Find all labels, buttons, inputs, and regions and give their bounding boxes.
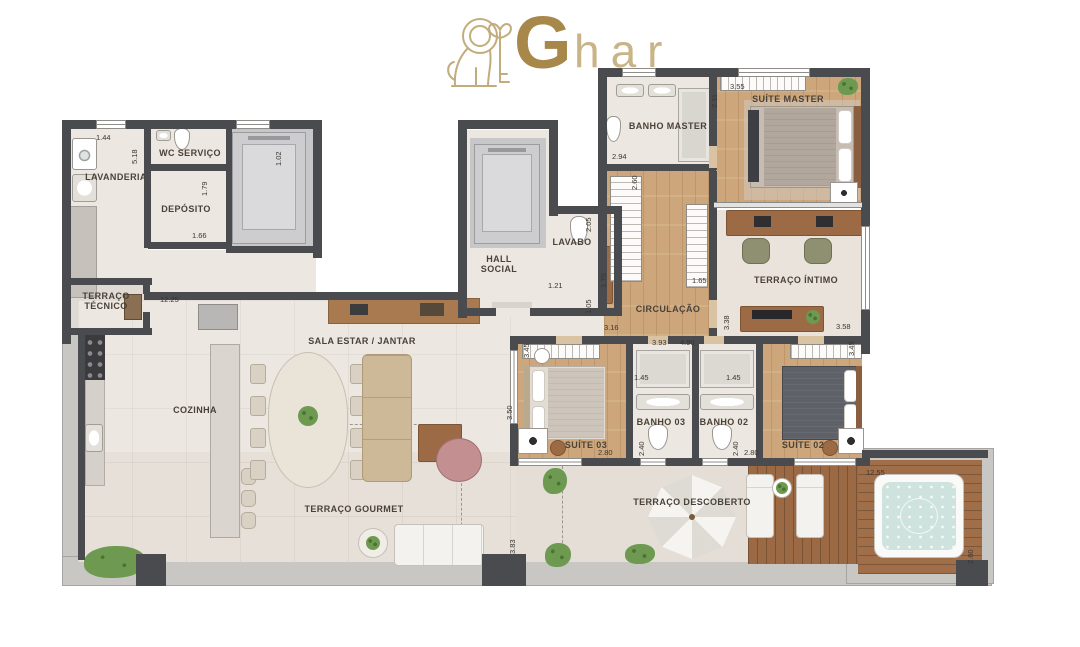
- floor-entry: [148, 250, 316, 296]
- home-office-desk: [726, 210, 864, 236]
- room-label-banho-03: BANHO 03: [637, 417, 686, 427]
- brand-letter-g: G: [514, 6, 572, 80]
- table-plant: [298, 406, 318, 426]
- wall: [226, 246, 322, 253]
- wall: [549, 120, 558, 216]
- wall-mirror: [534, 348, 550, 364]
- room-label-suite-02: SUÍTE 02: [782, 440, 824, 450]
- dim-label: 1.65: [692, 276, 707, 285]
- desk: [838, 428, 864, 454]
- sideboard-appliance: [420, 303, 444, 316]
- laptop: [816, 216, 833, 227]
- wall: [313, 120, 322, 258]
- dim-label: 1.45: [634, 373, 649, 382]
- wall: [692, 344, 699, 460]
- outdoor-sofa: [394, 524, 484, 566]
- wall: [458, 120, 558, 129]
- kitchen-sink: [85, 424, 103, 452]
- wall-pillar: [136, 554, 166, 586]
- dim-label: 3.50: [505, 405, 514, 420]
- brand-logo: G har: [438, 6, 678, 94]
- dim-label: 3.45: [847, 341, 856, 356]
- dim-label: 12.25: [160, 295, 179, 304]
- dim-label: 3.16: [604, 323, 619, 332]
- room-label-suite-master: SUÍTE MASTER: [752, 94, 824, 104]
- dining-chair: [250, 364, 266, 384]
- laptop: [754, 216, 771, 227]
- dim-label: 1.45: [726, 373, 741, 382]
- umbrella-pole: [689, 514, 695, 520]
- wall: [144, 292, 464, 300]
- dim-label: 2.80: [598, 448, 613, 457]
- elevator-car-inner: [482, 154, 532, 232]
- room-label-sala-estar-jantar: SALA ESTAR / JANTAR: [308, 336, 415, 346]
- door-opening: [798, 336, 824, 344]
- bed-bench: [748, 110, 759, 182]
- dining-chair: [250, 396, 266, 416]
- dim-label: 2.40: [637, 441, 646, 456]
- pillow: [532, 370, 545, 402]
- pillow: [838, 110, 852, 144]
- door-opening: [704, 336, 724, 344]
- dim-label: 2.60: [630, 175, 639, 190]
- dim-label: 3.83: [508, 539, 517, 554]
- window: [96, 120, 126, 129]
- desk-chair: [822, 440, 838, 456]
- pillow: [838, 148, 852, 182]
- dining-chair: [250, 460, 266, 480]
- plant: [838, 78, 858, 95]
- bed-blanket: [548, 368, 604, 438]
- wall: [78, 330, 85, 560]
- room-label-deposito: DEPÓSITO: [161, 204, 211, 214]
- wall: [614, 206, 622, 314]
- floorplan-canvas: LAVANDERIA WC SERVIÇO DEPÓSITO TERRAÇO T…: [0, 0, 1080, 647]
- room-label-terraco-descoberto: TERRAÇO DESCOBERTO: [633, 497, 751, 507]
- window: [702, 458, 728, 466]
- bathroom-sink: [636, 394, 690, 410]
- sideboard-appliance: [350, 304, 368, 315]
- tv: [752, 310, 792, 319]
- headboard: [854, 106, 861, 188]
- window: [861, 226, 870, 310]
- wall: [861, 68, 870, 354]
- elevator-door: [248, 136, 290, 140]
- elevator-car-inner: [242, 144, 296, 230]
- wall: [756, 344, 763, 460]
- dim-label: 1.79: [200, 181, 209, 196]
- room-label-circulacao: CIRCULAÇÃO: [636, 304, 701, 314]
- wall: [458, 120, 467, 318]
- glass-door: [714, 202, 862, 208]
- elevator-door: [488, 148, 526, 152]
- shower: [636, 350, 690, 388]
- fridge: [198, 304, 238, 330]
- stove: [85, 334, 105, 380]
- room-label-cozinha: COZINHA: [173, 405, 217, 415]
- desk-chair: [804, 238, 832, 264]
- room-label-terraco-tecnico: TERRAÇO TÉCNICO: [70, 291, 142, 311]
- dim-label: 3.45: [522, 343, 531, 358]
- dim-label: 1.44: [96, 133, 111, 142]
- door-opening: [496, 308, 530, 316]
- washing-machine: [72, 138, 97, 170]
- dim-label: 1.05: [584, 299, 593, 314]
- dim-label: 3.38: [722, 315, 731, 330]
- wall-pillar: [482, 554, 526, 586]
- room-label-banho-master: BANHO MASTER: [629, 121, 707, 131]
- dining-chair: [250, 428, 266, 448]
- brand-letters-har: har: [574, 28, 673, 74]
- nightstand: [830, 182, 858, 204]
- sun-lounger: [796, 474, 824, 538]
- hedge-plant: [545, 543, 571, 567]
- room-label-terraco-intimo: TERRAÇO ÍNTIMO: [754, 275, 838, 285]
- sofa: [362, 354, 412, 482]
- wall: [862, 450, 988, 458]
- room-label-lavabo: LAVABO: [552, 237, 591, 247]
- dim-label: 12.55: [866, 468, 885, 477]
- wall: [226, 126, 232, 250]
- wall: [62, 278, 152, 285]
- dim-label: 1.66: [192, 231, 207, 240]
- hedge-plant: [543, 468, 567, 494]
- door-opening: [709, 300, 717, 328]
- wall: [144, 126, 151, 248]
- wall: [148, 164, 226, 171]
- armchair-round: [436, 438, 482, 482]
- bar-stool: [241, 512, 256, 529]
- wall: [62, 328, 152, 335]
- room-label-banho-02: BANHO 02: [700, 417, 749, 427]
- dim-label: 3.55: [730, 82, 745, 91]
- table-plant: [776, 482, 788, 494]
- wall: [148, 242, 232, 249]
- dim-label: 2.60: [966, 549, 975, 564]
- window: [738, 68, 810, 77]
- door-opening: [556, 336, 582, 344]
- dim-label: 2.94: [612, 152, 627, 161]
- kitchen-island: [210, 344, 240, 538]
- dim-label: 2.40: [731, 441, 740, 456]
- dim-label: 3.58: [836, 322, 851, 331]
- window: [236, 120, 270, 129]
- desk-chair: [550, 440, 566, 456]
- wall: [143, 312, 150, 335]
- room-label-wc-servico: WC SERVIÇO: [159, 148, 221, 158]
- hot-tub-ring: [900, 498, 938, 534]
- dim-label: 2.11: [710, 94, 719, 108]
- dim-label: 5.18: [130, 149, 139, 164]
- desk-chair: [742, 238, 770, 264]
- wall: [626, 344, 633, 460]
- bar-stool: [241, 490, 256, 507]
- room-label-hall-social: HALL SOCIAL: [471, 254, 527, 274]
- dim-label: 2.05: [584, 217, 593, 232]
- bathroom-sink: [700, 394, 754, 410]
- window: [518, 458, 582, 466]
- wall: [549, 206, 622, 214]
- dim-label: 1.21: [548, 281, 563, 290]
- plant: [806, 310, 820, 324]
- hedge-plant: [625, 544, 655, 564]
- room-label-terraco-gourmet: TERRAÇO GOURMET: [305, 504, 404, 514]
- wall: [598, 174, 607, 316]
- dim-label: 3.93: [652, 338, 667, 347]
- bed-blanket: [764, 108, 836, 186]
- table-plant: [366, 536, 380, 550]
- dim-label: 4.90: [680, 338, 695, 347]
- wall: [604, 164, 716, 171]
- dim-label: 2.80: [744, 448, 759, 457]
- dim-label: 1.70: [599, 273, 608, 288]
- wc-sink: [156, 130, 171, 141]
- window: [640, 458, 666, 466]
- dim-label: 1.02: [274, 151, 283, 166]
- shower: [700, 350, 754, 388]
- lion-and-key-icon: [438, 10, 518, 92]
- desk: [518, 428, 548, 454]
- door-opening: [709, 146, 717, 168]
- window: [794, 458, 856, 466]
- room-label-lavanderia: LAVANDERIA: [85, 172, 147, 182]
